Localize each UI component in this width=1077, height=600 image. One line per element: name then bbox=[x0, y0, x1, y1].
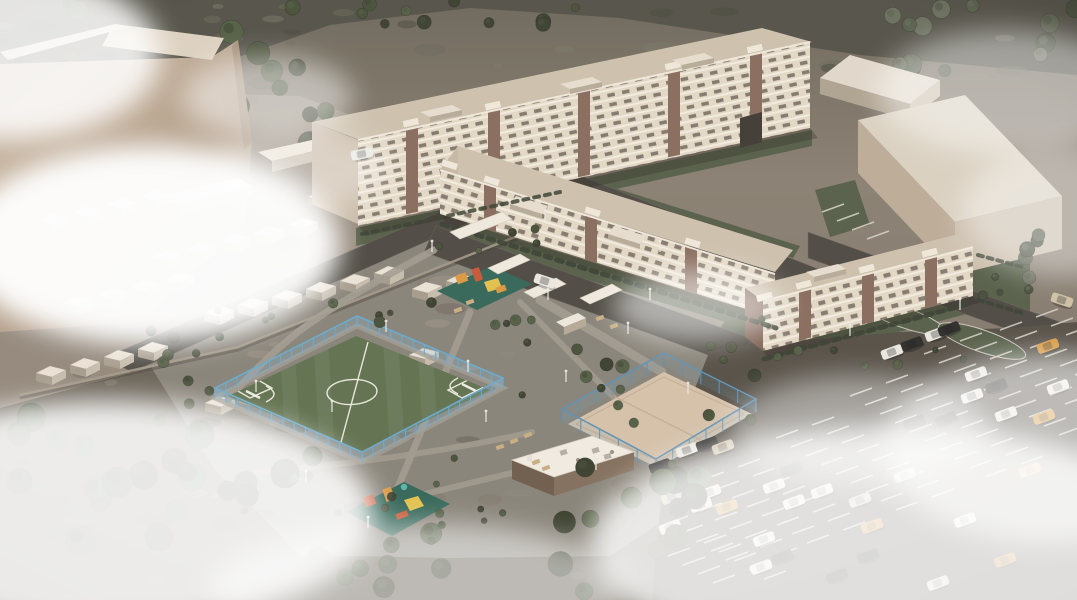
fog-cloud bbox=[210, 130, 390, 210]
fog-cloud bbox=[183, 56, 353, 140]
fog-cloud bbox=[613, 270, 783, 342]
rendering-viewport bbox=[0, 0, 1077, 600]
masterplan-rendering bbox=[0, 0, 1077, 600]
fog-cloud bbox=[730, 375, 990, 485]
